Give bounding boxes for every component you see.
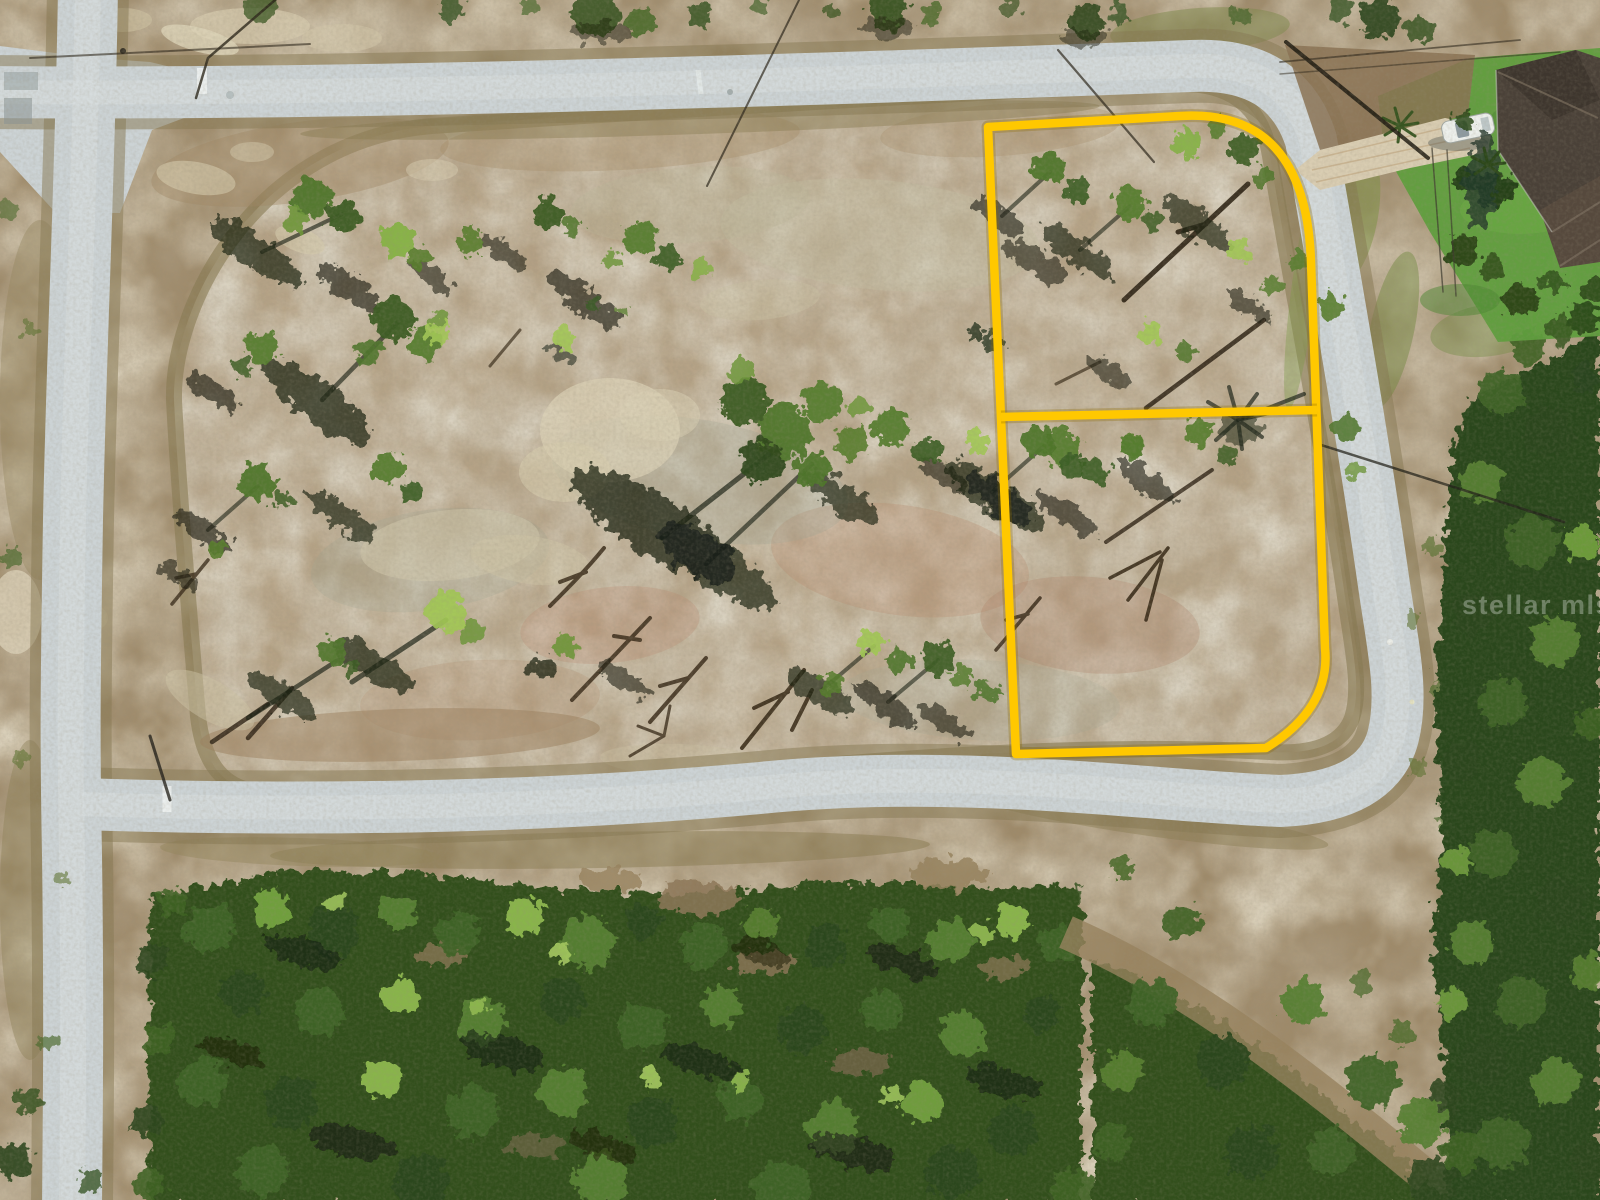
aerial-photo: stellar mls bbox=[0, 0, 1600, 1200]
aerial-photo-stage: stellar mls bbox=[0, 0, 1600, 1200]
watermark: stellar mls bbox=[1462, 590, 1600, 620]
fine-grain-overlay bbox=[0, 0, 1600, 1200]
